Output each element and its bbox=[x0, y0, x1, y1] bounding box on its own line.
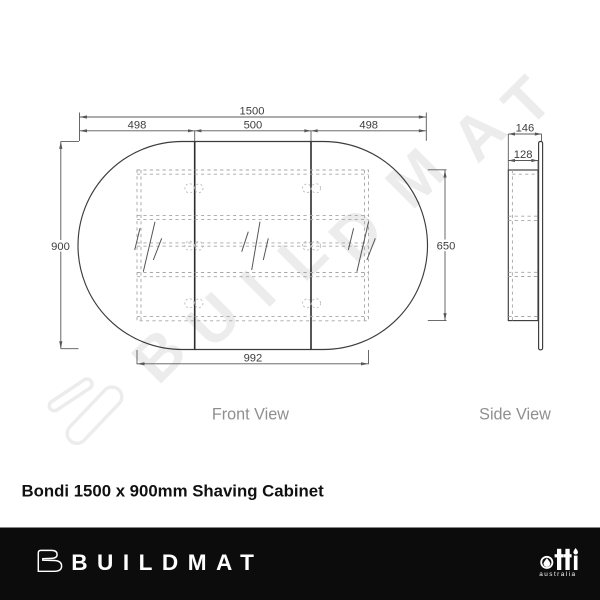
svg-text:Side View: Side View bbox=[479, 406, 551, 424]
svg-text:Bondi 1500 x 900mm Shaving Cab: Bondi 1500 x 900mm Shaving Cabinet bbox=[22, 481, 325, 500]
svg-text:Front View: Front View bbox=[212, 406, 289, 424]
svg-text:146: 146 bbox=[516, 123, 535, 135]
svg-text:900: 900 bbox=[51, 241, 70, 253]
svg-text:128: 128 bbox=[514, 149, 533, 161]
svg-text:992: 992 bbox=[244, 352, 263, 364]
svg-text:1500: 1500 bbox=[240, 106, 265, 118]
svg-text:australia: australia bbox=[539, 571, 576, 578]
svg-text:498: 498 bbox=[359, 119, 378, 131]
svg-text:498: 498 bbox=[128, 119, 147, 131]
svg-text:650: 650 bbox=[437, 241, 456, 253]
svg-text:500: 500 bbox=[244, 119, 263, 131]
svg-text:BUILDMAT: BUILDMAT bbox=[71, 550, 263, 575]
